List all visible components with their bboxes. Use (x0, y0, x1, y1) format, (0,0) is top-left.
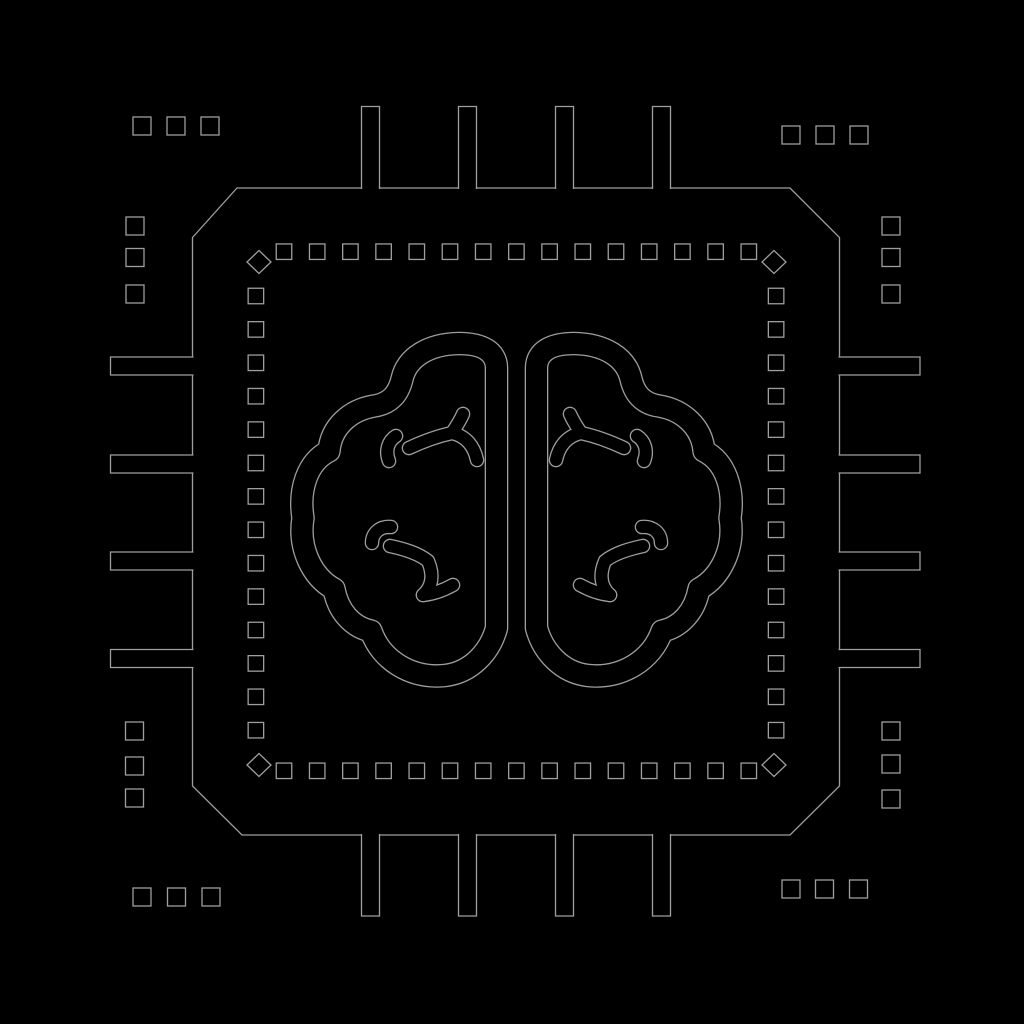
dash-square-top (741, 244, 757, 260)
dash-square-left (248, 355, 264, 371)
dash-square-bottom (475, 763, 491, 779)
dash-square-top (276, 244, 292, 260)
circuit-square (201, 117, 219, 135)
dash-square-bottom (675, 763, 691, 779)
circuit-square (202, 888, 220, 906)
chip-pin-left (111, 455, 194, 473)
dash-square-top (542, 244, 558, 260)
chip-pin-top (362, 107, 380, 190)
dash-square-left (248, 722, 264, 738)
chip-pin-bottom (362, 834, 380, 916)
dash-square-left (248, 522, 264, 538)
circuit-square (882, 755, 900, 773)
chip-pin-bottom (653, 834, 671, 916)
dash-square-top (409, 244, 425, 260)
dash-square-right (768, 656, 784, 672)
dash-square-right (768, 422, 784, 438)
chip-pin-right (839, 455, 921, 473)
circuit-square (126, 722, 144, 740)
chip-pin-top (653, 107, 671, 190)
circuit-square (126, 757, 144, 775)
chip-pin-right (839, 650, 921, 668)
circuit-square (850, 126, 868, 144)
circuit-square (816, 880, 834, 898)
dash-square-bottom (608, 763, 624, 779)
dash-square-left (248, 388, 264, 404)
dash-square-top (475, 244, 491, 260)
dash-square-right (768, 589, 784, 605)
circuit-square (168, 888, 186, 906)
dash-square-left (248, 455, 264, 471)
circuit-square (126, 249, 144, 267)
dash-square-top (343, 244, 359, 260)
dash-square-top (376, 244, 392, 260)
dash-square-left (248, 422, 264, 438)
dash-square-bottom (741, 763, 757, 779)
chip-pin-top (556, 107, 574, 190)
dash-square-top (575, 244, 591, 260)
chip-pin-left (111, 357, 194, 375)
dash-square-right (768, 622, 784, 638)
chip-pin-left (111, 650, 194, 668)
circuit-square (882, 722, 900, 740)
dash-square-left (248, 322, 264, 338)
dash-square-left (248, 689, 264, 705)
dash-square-bottom (575, 763, 591, 779)
circuit-square (882, 790, 900, 808)
chip-pin-bottom (459, 834, 477, 916)
circuit-square (782, 880, 800, 898)
circuit-square (133, 888, 151, 906)
dash-square-right (768, 288, 784, 304)
dash-square-top (509, 244, 525, 260)
dash-square-right (768, 555, 784, 571)
chip-pin-bottom (556, 834, 574, 916)
circuit-square (782, 126, 800, 144)
dash-square-right (768, 388, 784, 404)
dash-square-left (248, 622, 264, 638)
circuit-square (167, 117, 185, 135)
dash-square-bottom (409, 763, 425, 779)
dash-square-bottom (708, 763, 724, 779)
dash-square-bottom (376, 763, 392, 779)
circuit-square (882, 217, 900, 235)
dash-square-bottom (343, 763, 359, 779)
chip-pin-left (111, 552, 194, 570)
dash-square-right (768, 522, 784, 538)
dash-square-right (768, 689, 784, 705)
dash-square-top (442, 244, 458, 260)
dash-square-bottom (276, 763, 292, 779)
dash-square-top (675, 244, 691, 260)
dash-square-bottom (509, 763, 525, 779)
chip-pin-top (459, 107, 477, 190)
circuit-square (850, 880, 868, 898)
dash-square-top (608, 244, 624, 260)
dash-square-bottom (309, 763, 325, 779)
dash-square-bottom (542, 763, 558, 779)
circuit-square (133, 117, 151, 135)
dash-square-left (248, 589, 264, 605)
dash-square-right (768, 322, 784, 338)
dash-square-top (708, 244, 724, 260)
dash-square-right (768, 355, 784, 371)
dash-square-left (248, 555, 264, 571)
dash-square-top (641, 244, 657, 260)
circuit-square (126, 789, 144, 807)
chip-pin-right (839, 552, 921, 570)
dash-square-right (768, 489, 784, 505)
chip-pin-right (839, 357, 921, 375)
dash-square-bottom (641, 763, 657, 779)
dash-square-left (248, 288, 264, 304)
dash-square-top (309, 244, 325, 260)
circuit-square (126, 285, 144, 303)
dash-square-right (768, 455, 784, 471)
circuit-square (882, 249, 900, 267)
dash-square-right (768, 722, 784, 738)
ai-brain-chip-icon (0, 0, 1024, 1024)
dash-square-left (248, 656, 264, 672)
dash-square-bottom (442, 763, 458, 779)
circuit-square (126, 217, 144, 235)
circuit-square (882, 285, 900, 303)
circuit-square (816, 126, 834, 144)
ai-brain-chip-svg (0, 0, 1024, 1024)
dash-square-left (248, 489, 264, 505)
